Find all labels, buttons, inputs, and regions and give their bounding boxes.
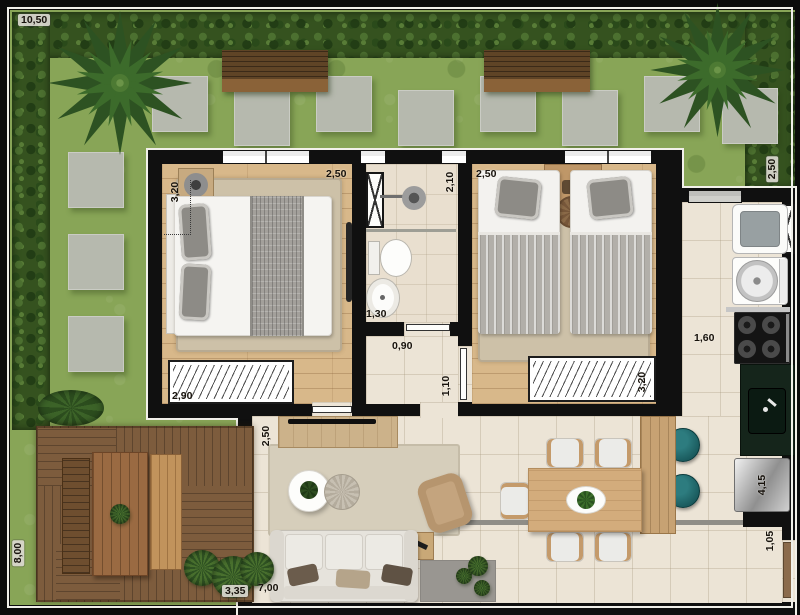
- sofa-cushion: [325, 534, 363, 570]
- dimension-label-entry-width: 1,05: [762, 522, 778, 560]
- stove-burner: [762, 340, 780, 358]
- pouf: [324, 474, 360, 510]
- bedroom1-door: [312, 406, 352, 413]
- bed-pillow: [586, 176, 634, 220]
- washer-drum: [736, 260, 778, 302]
- tv: [288, 419, 376, 424]
- paver: [562, 90, 618, 146]
- dining-chair: [594, 438, 632, 468]
- dimension-label-bedroom2-wardrobe: 3,20: [634, 362, 650, 402]
- breakfast-counter: [640, 416, 676, 534]
- bedroom2-door: [460, 348, 467, 400]
- dimension-label-bedroom1-width: 2,50: [326, 168, 346, 180]
- stove-burner: [762, 316, 780, 334]
- fridge: 4,15: [734, 458, 790, 512]
- dimension-label-side-garden: 2,50: [762, 148, 782, 190]
- dimension-label-kitchen-width: 1,60: [694, 332, 714, 344]
- laundry-basin: [740, 211, 780, 247]
- dimension-label-bedroom1-depth: 3,20: [166, 172, 184, 212]
- garden-bench: [222, 50, 328, 92]
- paver: [68, 316, 124, 372]
- wall-tv: [346, 222, 352, 302]
- floor-plan: 4,15 10,50 3,20 2,50 2,90 2,1: [0, 0, 800, 615]
- stove-handle: [786, 314, 789, 362]
- dimension-label-bedroom1-wardrobe: 2,90: [172, 390, 192, 402]
- dimension-label-hall-width: 0,90: [392, 340, 412, 352]
- deck-table-plant: [110, 504, 130, 524]
- stove-burner: [738, 316, 756, 334]
- mat-plant: [468, 556, 488, 576]
- dimension-label-living-tv-wall: 2,50: [258, 416, 274, 456]
- bed-blanket: [478, 232, 560, 334]
- dining-chair: [500, 482, 530, 520]
- paver: [398, 90, 454, 146]
- bed-pillow: [494, 176, 542, 220]
- garden-shrub: [38, 390, 104, 426]
- counter-faucet: [763, 407, 768, 412]
- dimension-label-bedroom2-width: 2,50: [476, 168, 496, 180]
- dimension-label-deck-width: 3,35: [222, 585, 248, 597]
- dimension-label-garden-width: 10,50: [18, 14, 50, 26]
- dining-chair: [546, 532, 584, 562]
- paver: [234, 90, 290, 146]
- bed-blanket: [570, 232, 652, 334]
- kitchen-top-window: [688, 190, 742, 203]
- sofa-pillow: [335, 569, 370, 589]
- shower-head: [402, 186, 426, 210]
- dimension-label-living-width: 7,00: [258, 582, 278, 594]
- dimension-label-deck-depth: 8,00: [8, 530, 28, 576]
- dimension-label-kitchen-run: 4,15: [756, 475, 768, 495]
- window-mullion: [607, 151, 609, 163]
- table-centerpiece-plant: [577, 491, 595, 509]
- deck-bench: [62, 458, 90, 574]
- paver: [68, 152, 124, 208]
- bed-pillow: [179, 263, 212, 320]
- toilet-tank: [368, 241, 380, 275]
- dining-chair: [594, 532, 632, 562]
- toilet-bowl: [380, 239, 412, 277]
- bathroom-vent-window: [366, 172, 384, 228]
- stove-burner: [738, 340, 756, 358]
- shower-glass: [366, 229, 456, 232]
- bathroom-door: [406, 324, 450, 331]
- hall-top-window: [441, 150, 467, 164]
- entry-door: [783, 542, 793, 598]
- dimension-label-hall-length: 1,10: [438, 366, 454, 406]
- dimension-label-bathroom-width: 1,30: [366, 308, 386, 320]
- deck-parquet: [176, 486, 252, 558]
- sink-faucet: [380, 295, 385, 300]
- dimension-label-bathroom-depth: 2,10: [442, 164, 458, 200]
- dining-chair: [546, 438, 584, 468]
- palm-tree: [40, 8, 200, 158]
- washer-panel: [779, 259, 787, 303]
- garden-bench: [484, 50, 590, 92]
- coffee-table-plant: [300, 481, 318, 499]
- bed-blanket: [250, 196, 304, 336]
- deck-bench: [150, 454, 182, 570]
- palm-tree: [640, 0, 795, 140]
- bathroom-top-window: [360, 150, 386, 164]
- window-mullion: [265, 151, 267, 163]
- deck-plant: [240, 552, 274, 586]
- paver: [68, 234, 124, 290]
- mat-plant: [474, 580, 490, 596]
